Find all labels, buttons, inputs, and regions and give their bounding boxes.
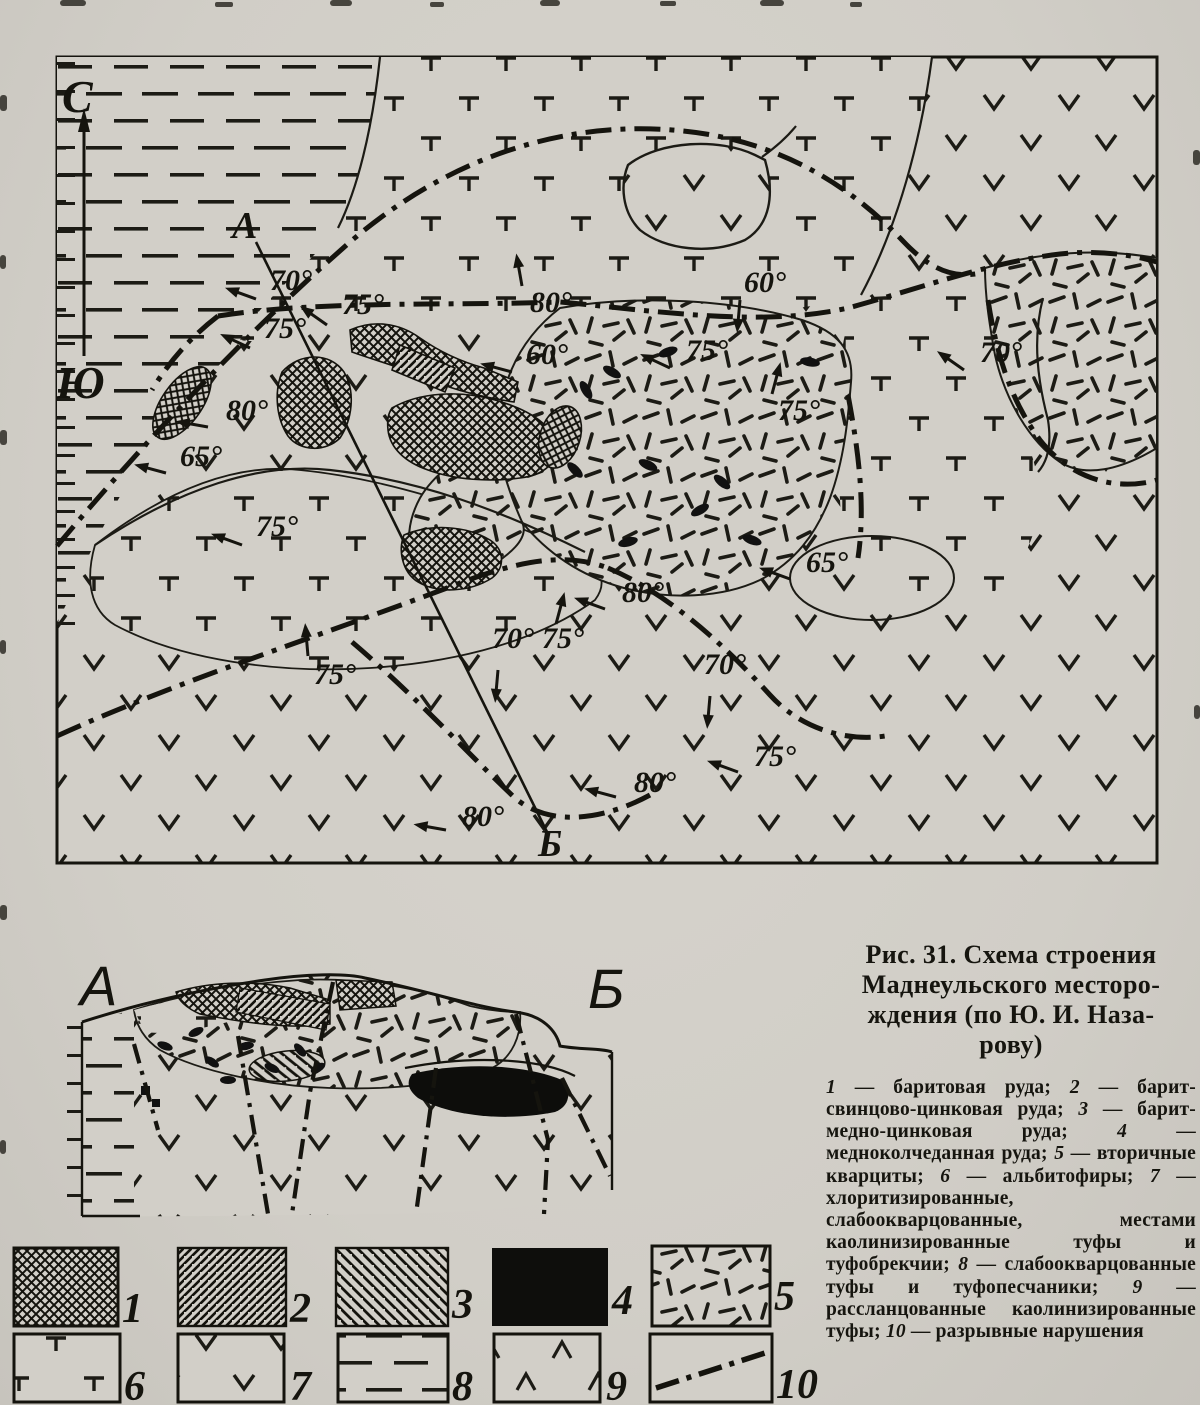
legend-num-8: 8 [452,1364,473,1405]
legend-num-4: 4 [611,1278,633,1324]
legend-num-7: 7 [290,1364,313,1405]
legend-num-10: 10 [776,1362,818,1405]
legend-swatch-1 [14,1248,118,1326]
dip-value: 75° [264,312,306,345]
section-end-label: Б [537,823,562,865]
dip-value: 80° [634,766,676,799]
south-label: Ю [55,357,105,408]
section-barite-block [336,980,396,1010]
legend-num-6: 6 [124,1364,145,1405]
legend-num-9: 9 [606,1364,627,1405]
copper-ore-lens [220,1076,236,1084]
legend-swatch-9 [494,1334,600,1402]
caption-title: Рис. 31. Схема строения Маднеульского ме… [826,940,1196,1061]
legend-swatch-6 [14,1334,120,1402]
section-start-label: А [230,205,257,247]
dip-value: 80° [622,576,664,609]
dip-value: 60° [744,266,786,299]
legend-swatch-4 [492,1248,608,1326]
north-label: С [62,71,94,122]
legend-swatch-5 [652,1246,770,1326]
section-ore-speck [152,1099,160,1107]
legend-num-2: 2 [289,1286,311,1332]
legend-num-3: 3 [451,1282,473,1328]
section-unit8-column [82,1010,134,1216]
dip-value: 80° [530,286,572,319]
dip-value: 75° [342,288,384,321]
cross-section: А Б [75,954,624,1216]
dip-value: 75° [754,740,796,773]
dip-value: 75° [778,394,820,427]
dip-value: 75° [542,622,584,655]
dip-value: 65° [180,440,222,473]
caption-legend-text: 1 — баритовая руда; 2 — барит-свинцово-ц… [826,1077,1196,1344]
geologic-map: 70°75°75°80°60°60°75°70°80°65°75°75°65°8… [55,57,1157,865]
scanned-figure-page: 70°75°75°80°60°60°75°70°80°65°75°75°65°8… [0,0,1200,1405]
dip-value: 60° [526,338,568,371]
dip-value: 80° [462,800,504,833]
dip-value: 80° [226,394,268,427]
dip-value: 70° [492,622,534,655]
legend-num-5: 5 [774,1274,795,1320]
legend: 1 2 3 4 5 6 7 8 9 10 [14,1246,818,1405]
dip-value: 75° [314,658,356,691]
legend-swatch-8 [338,1334,448,1402]
dip-value: 75° [686,334,728,367]
dip-value: 70° [980,336,1022,369]
dip-value: 65° [806,546,848,579]
dip-value: 75° [256,510,298,543]
dip-value: 70° [270,264,312,297]
section-label-a: А [77,954,117,1017]
legend-swatch-2 [178,1248,286,1326]
v-inlier-oval [624,144,770,249]
figure-caption: Рис. 31. Схема строения Маднеульского ме… [826,940,1196,1343]
section-label-b: Б [588,957,624,1020]
legend-num-1: 1 [122,1286,143,1332]
dip-value: 70° [704,648,746,681]
legend-swatch-7 [178,1334,284,1402]
legend-swatch-3 [336,1248,448,1326]
